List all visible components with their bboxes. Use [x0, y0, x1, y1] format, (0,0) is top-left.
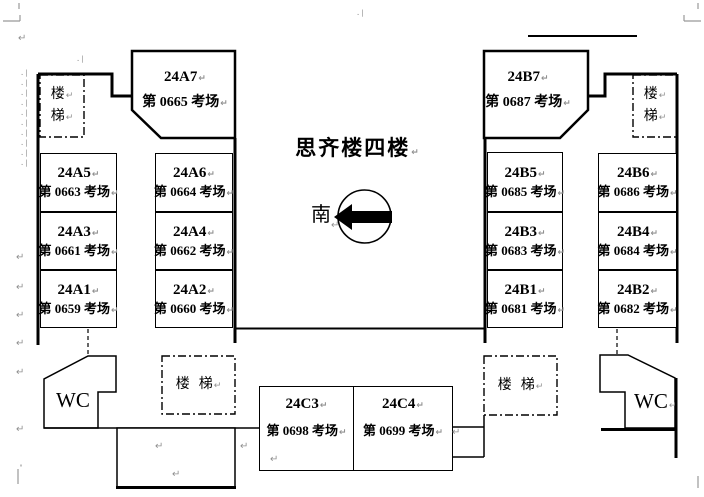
- pilcrow-mark: ↵: [111, 189, 119, 199]
- stairs-label: 楼: [176, 377, 190, 392]
- paragraph-mark: .|: [20, 100, 28, 107]
- room-code: 24A2: [173, 282, 206, 298]
- pilcrow-mark: ↵: [669, 401, 677, 411]
- room-venue: 第 0662 考场: [154, 243, 226, 258]
- pilcrow-mark: ↵: [92, 170, 100, 180]
- room-venue: 第 0698 考场: [266, 423, 338, 438]
- paragraph-mark: .|: [20, 140, 28, 147]
- room-code: 24A5: [58, 165, 91, 181]
- pilcrow-mark: ↵: [207, 287, 215, 297]
- pilcrow-mark: ↵: [435, 428, 443, 438]
- room-code: 24C3: [286, 396, 319, 412]
- room-24b4: 24B4↵ 第 0684 考场↵: [598, 212, 677, 270]
- pilcrow-mark: ↵: [670, 248, 678, 258]
- pilcrow-mark: ↵: [226, 248, 234, 258]
- paragraph-mark: .|: [20, 120, 28, 127]
- room-24b2: 24B2↵ 第 0682 考场↵: [598, 270, 677, 328]
- pilcrow-mark: ↵: [339, 428, 347, 438]
- pilcrow-mark: ↵: [16, 339, 24, 349]
- room-code: 24A4: [173, 224, 206, 240]
- room-venue: 第 0682 考场: [597, 301, 669, 316]
- room-code: 24A7: [164, 69, 197, 85]
- stairs-label: 梯: [51, 109, 65, 124]
- pilcrow-mark: ↵: [557, 306, 565, 316]
- pilcrow-mark: ↵: [536, 382, 544, 392]
- pilcrow-mark: ↵: [557, 248, 565, 258]
- room-24b3: 24B3↵ 第 0683 考场↵: [487, 212, 563, 270]
- room-venue: 第 0685 考场: [485, 184, 557, 199]
- room-24c4: 24C4↵ 第 0699 考场↵: [353, 386, 453, 471]
- room-code: 24A1: [58, 282, 91, 298]
- pilcrow-mark: ↵: [220, 99, 228, 109]
- pilcrow-mark: ↵: [198, 74, 206, 84]
- pilcrow-mark: ↵: [16, 253, 24, 263]
- pilcrow-mark: ↵: [207, 229, 215, 239]
- paragraph-mark: .|: [20, 160, 28, 167]
- pilcrow-mark: ↵: [207, 170, 215, 180]
- room-24b5: 24B5↵ 第 0685 考场↵: [487, 152, 563, 212]
- pilcrow-mark: ↵: [538, 287, 546, 297]
- room-24a5: 24A5↵ 第 0663 考场↵: [40, 153, 117, 212]
- stairs-label: 梯: [199, 377, 213, 392]
- room-venue: 第 0663 考场: [38, 184, 110, 199]
- pilcrow-mark: ↵: [670, 306, 678, 316]
- paragraph-mark: .|: [20, 90, 28, 97]
- room-venue: 第 0661 考场: [38, 243, 110, 258]
- pilcrow-mark: ↵: [92, 229, 100, 239]
- room-venue: 第 0699 考场: [363, 423, 435, 438]
- stairs-label: 楼: [644, 87, 658, 102]
- room-24b7: 24B7↵ 第 0687 考场↵: [480, 58, 576, 122]
- pilcrow-mark: ↵: [111, 248, 119, 258]
- room-24a1: 24A1↵ 第 0659 考场↵: [40, 270, 117, 328]
- pilcrow-mark: ↵: [226, 306, 234, 316]
- room-venue: 第 0686 考场: [597, 184, 669, 199]
- pilcrow-mark: ↵: [66, 91, 74, 101]
- stairs-top-right: 楼↵ 梯↵: [633, 75, 677, 137]
- paragraph-mark: .|: [20, 130, 28, 137]
- pilcrow-mark: ↵: [240, 442, 248, 452]
- room-24a4: 24A4↵ 第 0662 考场↵: [155, 212, 233, 270]
- pilcrow-mark: ↵: [226, 189, 234, 199]
- pilcrow-mark: ↵: [18, 34, 26, 44]
- corner-mark-top-right: [684, 3, 701, 21]
- room-venue: 第 0659 考场: [38, 301, 110, 316]
- room-venue: 第 0664 考场: [154, 184, 226, 199]
- pilcrow-mark: ↵: [563, 99, 571, 109]
- wc-right-label: WC↵: [634, 391, 676, 412]
- pilcrow-mark: ↵: [270, 455, 278, 465]
- room-venue: 第 0660 考场: [154, 301, 226, 316]
- room-code: 24B5: [504, 165, 537, 181]
- paragraph-mark: .|: [20, 70, 28, 77]
- room-24a6: 24A6↵ 第 0664 考场↵: [155, 153, 233, 212]
- stairs-label: 梯: [644, 109, 658, 124]
- floor-plan-page: 思齐楼四楼↵ 南 24A7↵ 第 0665 考场↵ 24B7↵ 第 0687 考…: [0, 0, 704, 497]
- pilcrow-mark: ↵: [650, 170, 658, 180]
- room-code: 24B1: [504, 282, 537, 298]
- wc-left-label: WC: [56, 390, 90, 411]
- stairs-bottom-right: 楼梯↵: [484, 356, 557, 415]
- room-venue: 第 0665 考场: [142, 95, 219, 110]
- south-label-text: 南: [311, 204, 331, 226]
- pilcrow-mark: ↵: [670, 189, 678, 199]
- stairs-top-left: 楼↵ 梯↵: [40, 75, 84, 137]
- room-code: 24B2: [617, 282, 650, 298]
- room-venue: 第 0687 考场: [485, 95, 562, 110]
- room-24a7: 24A7↵ 第 0665 考场↵: [137, 58, 233, 122]
- stairs-bottom-left: 楼梯↵: [162, 356, 235, 414]
- paragraph-mark: .|: [20, 80, 28, 87]
- stairs-label: 梯: [521, 378, 535, 393]
- room-code: 24B4: [617, 224, 650, 240]
- corner-mark-top-left: [3, 3, 20, 21]
- pilcrow-mark: ↵: [16, 368, 24, 378]
- room-code: 24C4: [382, 396, 415, 412]
- pilcrow-mark: ↵: [16, 311, 24, 321]
- pilcrow-mark: ↵: [411, 148, 421, 158]
- paragraph-mark: .|: [20, 150, 28, 157]
- page-title-text: 思齐楼四楼: [295, 136, 410, 160]
- room-venue: 第 0681 考场: [485, 301, 557, 316]
- pilcrow-mark: ↵: [214, 381, 222, 391]
- pilcrow-mark: ↵: [416, 401, 424, 411]
- stairs-label: 楼: [498, 378, 512, 393]
- pilcrow-mark: ↵: [172, 470, 180, 480]
- pilcrow-mark: ↵: [16, 283, 24, 293]
- paragraph-mark: .|: [356, 10, 364, 17]
- pilcrow-mark: ↵: [538, 170, 546, 180]
- wc-text: WC: [634, 389, 668, 413]
- south-label: 南: [311, 205, 331, 225]
- wc-text: WC: [56, 388, 90, 412]
- room-24a3: 24A3↵ 第 0661 考场↵: [40, 212, 117, 270]
- pilcrow-mark: ↵: [659, 91, 667, 101]
- room-code: 24A6: [173, 165, 206, 181]
- room-24a2: 24A2↵ 第 0660 考场↵: [155, 270, 233, 328]
- room-code: 24B3: [504, 224, 537, 240]
- pilcrow-mark: ↵: [92, 287, 100, 297]
- page-title: 思齐楼四楼↵: [287, 138, 429, 159]
- room-venue: 第 0684 考场: [597, 243, 669, 258]
- pilcrow-mark: ↵: [66, 113, 74, 123]
- pilcrow-mark: ↵: [111, 306, 119, 316]
- pilcrow-mark: ↵: [557, 189, 565, 199]
- pilcrow-mark: ↵: [541, 74, 549, 84]
- paragraph-mark: .|: [76, 56, 84, 63]
- pilcrow-mark: ↵: [538, 229, 546, 239]
- pilcrow-mark: ↵: [16, 425, 24, 435]
- pilcrow-mark: ↵: [650, 287, 658, 297]
- pilcrow-mark: ↵: [320, 401, 328, 411]
- room-code: 24A3: [58, 224, 91, 240]
- pilcrow-mark: ↵: [155, 442, 163, 452]
- room-24b6: 24B6↵ 第 0686 考场↵: [598, 153, 677, 212]
- pilcrow-mark: ↵: [650, 229, 658, 239]
- pilcrow-mark: ↵: [659, 113, 667, 123]
- room-code: 24B6: [617, 165, 650, 181]
- paragraph-mark: .|: [20, 110, 28, 117]
- room-24b1: 24B1↵ 第 0681 考场↵: [487, 270, 563, 328]
- stairs-label: 楼: [51, 87, 65, 102]
- room-venue: 第 0683 考场: [485, 243, 557, 258]
- pilcrow-mark: ↵: [331, 221, 339, 231]
- corner-mark-bottom-left: [18, 465, 21, 485]
- pilcrow-mark: ↵: [452, 428, 460, 438]
- room-code: 24B7: [507, 69, 540, 85]
